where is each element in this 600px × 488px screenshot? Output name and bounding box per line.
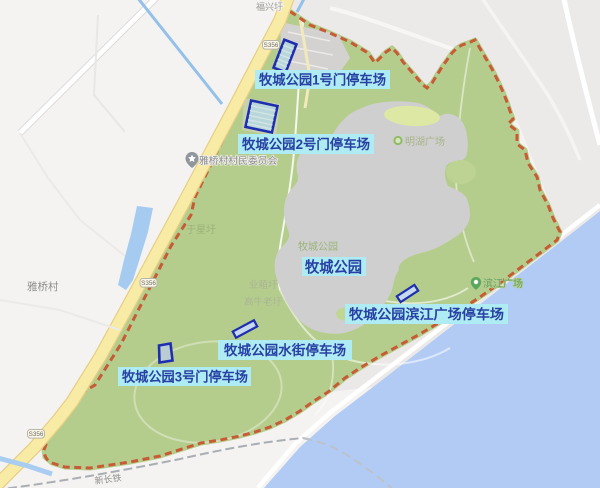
svg-text:牧城公园: 牧城公园 [305, 258, 362, 276]
svg-text:雅桥村: 雅桥村 [27, 280, 59, 293]
svg-text:牧城公园2号门停车场: 牧城公园2号门停车场 [242, 136, 370, 152]
svg-text:牧城公园滨江广场停车场: 牧城公园滨江广场停车场 [349, 306, 504, 322]
svg-text:福兴圩: 福兴圩 [256, 1, 283, 12]
svg-text:牧城公园: 牧城公园 [298, 240, 338, 253]
svg-text:业蒩圩: 业蒩圩 [249, 279, 278, 291]
svg-text:牧城公园1号门停车场: 牧城公园1号门停车场 [259, 72, 386, 88]
svg-text:牧城公园水街停车场: 牧城公园水街停车场 [224, 342, 346, 358]
svg-text:牧城公园3号门停车场: 牧城公园3号门停车场 [122, 369, 248, 385]
svg-text:高牛老圩: 高牛老圩 [244, 296, 283, 308]
svg-text:S356: S356 [29, 431, 44, 438]
svg-text:S356: S356 [264, 42, 279, 49]
svg-text:滨江广场: 滨江广场 [483, 277, 523, 290]
svg-text:雅桥村村民委员会: 雅桥村村民委员会 [199, 154, 278, 167]
svg-text:S356: S356 [141, 280, 156, 287]
svg-text:于星圩: 于星圩 [186, 223, 216, 236]
svg-text:明湖广场: 明湖广场 [405, 135, 445, 148]
